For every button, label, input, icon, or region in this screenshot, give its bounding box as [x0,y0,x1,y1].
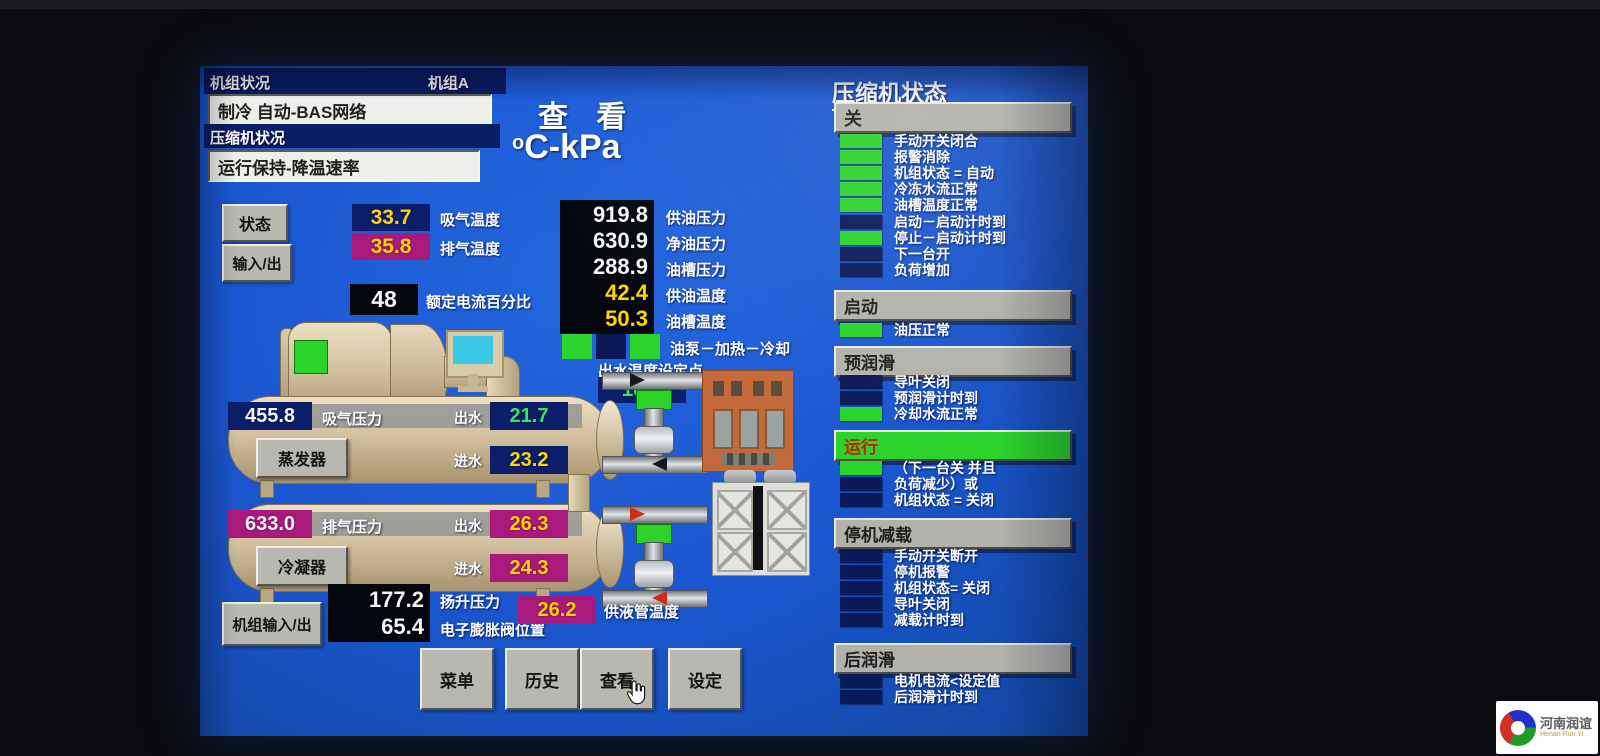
evap-leaving-value: 21.7 [490,402,568,430]
status-label: 机组状态 = 关闭 [894,490,994,510]
condenser-pressure-value: 633.0 [228,510,312,538]
oil-net-pressure-value: 630.9 [560,228,648,254]
cooling-tower-panel [767,490,807,530]
status-indicator [840,198,882,212]
evaporator-leg [536,480,550,498]
oil-cooling-indicator [630,334,660,359]
units-degree-mark: o [512,132,524,154]
suction-temp-value: 33.7 [352,204,430,231]
status-row: 减载计时到 [840,612,964,628]
status-indicator [840,477,882,491]
compressor-state-box: 关 [834,102,1072,133]
status-indicator [840,182,882,196]
oil-supply-temp-label: 供油温度 [666,285,726,306]
evap-entering-label: 进水 [454,451,482,471]
oil-pump-indicators-label: 油泵－加热－冷却 [670,338,790,359]
fla-percent-label: 额定电流百分比 [426,291,531,312]
cooling-tower-panel [717,532,753,572]
liquid-line-temp-label: 供液管温度 [604,601,679,622]
control-panel-screen [453,336,493,364]
watermark-text-en: Henan Run Yi [1540,731,1592,738]
evaporator-button[interactable]: 蒸发器 [256,438,348,478]
lift-pressure-value: 177.2 [328,586,424,613]
status-indicator [840,597,882,611]
units-title: oC-kPa [512,128,621,167]
status-row: 负荷增加 [840,262,950,278]
status-indicator [840,581,882,595]
discharge-temp-label: 排气温度 [440,238,500,259]
status-row: 油压正常 [840,322,950,338]
view-button[interactable]: 查看 [580,648,654,710]
status-indicator [840,263,882,277]
history-button[interactable]: 历史 [505,648,579,710]
status-indicator [840,690,882,704]
section-header-postlube: 后润滑 [834,643,1072,674]
chw-supply-arrow-icon [630,373,645,387]
unit-name-label: 机组A [428,72,469,93]
monitor-stand [468,374,478,386]
status-indicator [840,391,882,405]
discharge-temp-value: 35.8 [352,233,430,260]
hmi-screen: 机组状况 机组A 制冷 自动-BAS网络 压缩机状况 运行保持-降温速率 查 看… [200,66,1088,736]
photo-top-strip [0,0,1600,9]
compressor-mode-field: 运行保持-降温速率 [208,150,480,182]
status-indicator [840,166,882,180]
chw-pump-body [634,426,674,454]
status-indicator [840,407,882,421]
setting-button[interactable]: 设定 [668,648,742,710]
building-big-window [739,409,759,449]
condenser-button[interactable]: 冷凝器 [256,546,348,586]
oil-sump-temp-label: 油槽温度 [666,311,726,332]
status-indicator [840,323,882,337]
oil-heater-indicator [596,334,626,359]
status-indicator [840,150,882,164]
status-button[interactable]: 状态 [222,204,288,242]
building-window [771,381,782,396]
status-label: 冷却水流正常 [894,404,978,424]
evap-leaving-label: 出水 [454,408,482,428]
eev-position-value: 65.4 [328,613,424,640]
building-window [753,381,764,396]
cond-entering-value: 24.3 [490,554,568,582]
building-big-window [713,409,733,449]
cond-leaving-value: 26.3 [490,510,568,538]
liquid-line-temp-value: 26.2 [518,596,596,624]
cond-leaving-label: 出水 [454,516,482,536]
cw-supply-pipe [602,506,708,524]
units-main: C-kPa [524,128,620,166]
status-label: 负荷增加 [894,260,950,280]
status-indicator [840,674,882,688]
watermark-text-cn: 河南润谊 [1540,717,1592,731]
compressor-run-indicator [294,340,328,374]
unit-mode-field: 制冷 自动-BAS网络 [208,94,492,126]
cooling-tower-panel [717,490,753,530]
evaporator-pressure-value: 455.8 [228,402,312,430]
building-window [713,381,724,396]
cw-pump-body [634,560,674,588]
cooling-tower-stripe [753,486,763,570]
oil-sump-pressure-value: 288.9 [560,254,648,280]
building-window [731,381,742,396]
watermark-logo-icon [1500,710,1536,746]
cw-supply-arrow-icon [630,507,645,521]
section-header-shutdown-unload: 停机减载 [834,518,1072,549]
lift-pressure-label: 扬升压力 [440,591,500,612]
status-indicator [840,215,882,229]
chw-pump-indicator [636,390,672,410]
status-indicator [840,565,882,579]
status-indicator [840,461,882,475]
status-indicator [840,613,882,627]
oil-pump-indicator [562,334,592,359]
status-row: 后润滑计时到 [840,689,978,705]
section-header-prelube: 预润滑 [834,346,1072,377]
menu-button[interactable]: 菜单 [420,648,494,710]
evap-entering-value: 23.2 [490,446,568,474]
oil-sump-temp-value: 50.3 [560,306,648,332]
status-row: 油槽温度正常 [840,197,978,213]
io-button[interactable]: 输入/出 [222,244,292,282]
status-indicator [840,247,882,261]
tank-connector-pipe [568,474,590,512]
section-header-start: 启动 [834,290,1072,321]
status-label: 油压正常 [894,320,950,340]
oil-supply-pressure-label: 供油压力 [666,207,726,228]
compressor-status-label: 压缩机状况 [210,127,285,148]
cond-entering-label: 进水 [454,559,482,579]
photo-background: 机组状况 机组A 制冷 自动-BAS网络 压缩机状况 运行保持-降温速率 查 看… [0,0,1600,756]
watermark: 河南润谊 Henan Run Yi [1496,701,1598,754]
fla-percent-value: 48 [350,284,418,315]
status-row: 冷却水流正常 [840,406,978,422]
status-indicator [840,549,882,563]
building-graphic [702,370,794,472]
status-indicator [840,493,882,507]
chw-supply-pipe [602,372,708,390]
status-label: 减载计时到 [894,610,964,630]
oil-sump-pressure-label: 油槽压力 [666,259,726,280]
monitor-base [458,386,488,392]
cooling-tower-panel [767,532,807,572]
unit-io-button[interactable]: 机组输入/出 [222,602,322,646]
status-indicator [840,231,882,245]
oil-net-pressure-label: 净油压力 [666,233,726,254]
oil-supply-pressure-value: 919.8 [560,202,648,228]
section-header-run: 运行 [834,430,1072,461]
chw-return-arrow-icon [652,457,667,471]
status-row: 机组状态 = 关闭 [840,492,994,508]
evaporator-pressure-label: 吸气压力 [322,408,382,429]
building-entrance [721,453,775,465]
building-big-window [765,409,785,449]
unit-status-label: 机组状况 [210,72,270,93]
status-indicator [840,134,882,148]
cw-pump-indicator [636,524,672,544]
condenser-pressure-label: 排气压力 [322,516,382,537]
evaporator-leg [260,480,274,498]
oil-supply-temp-value: 42.4 [560,280,648,306]
suction-temp-label: 吸气温度 [440,209,500,230]
status-indicator [840,375,882,389]
status-label: 后润滑计时到 [894,687,978,707]
